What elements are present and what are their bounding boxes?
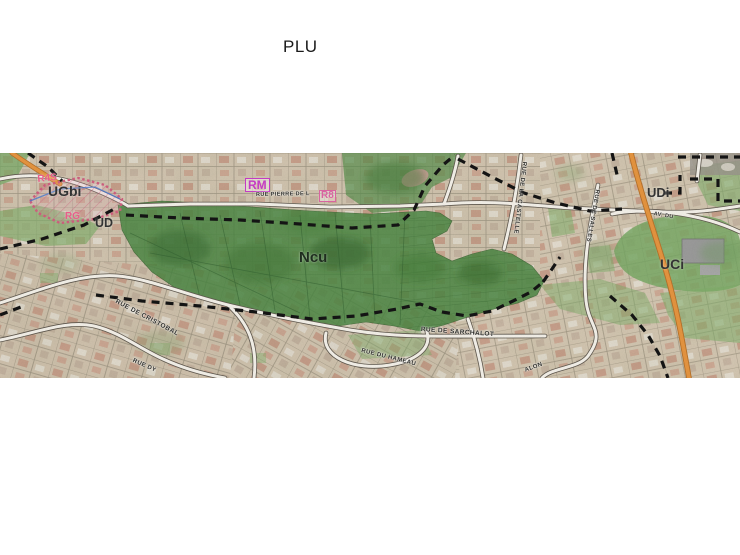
aerial-map-graphic: [0, 153, 740, 378]
page-title: PLU: [283, 37, 318, 57]
photo-grain-texture: [0, 153, 740, 378]
reservation-label-r4s: R4S: [37, 173, 57, 185]
zone-label-ncu: Ncu: [299, 250, 327, 265]
plu-plan-page: PLU: [0, 0, 740, 555]
street-label-rue-pierre: RUE PIERRE DE L: [256, 192, 310, 198]
zone-label-udi: UDi: [647, 186, 669, 199]
zone-label-ud: UD: [95, 217, 113, 230]
reservation-label-rm: RM: [245, 178, 270, 192]
plu-map-figure: [0, 153, 740, 378]
zone-label-uci: UCi: [660, 257, 684, 271]
reservation-label-rg: RG: [65, 212, 80, 222]
zone-label-ugbi: UGbi: [48, 184, 81, 198]
reservation-label-r8: R8: [319, 190, 336, 202]
